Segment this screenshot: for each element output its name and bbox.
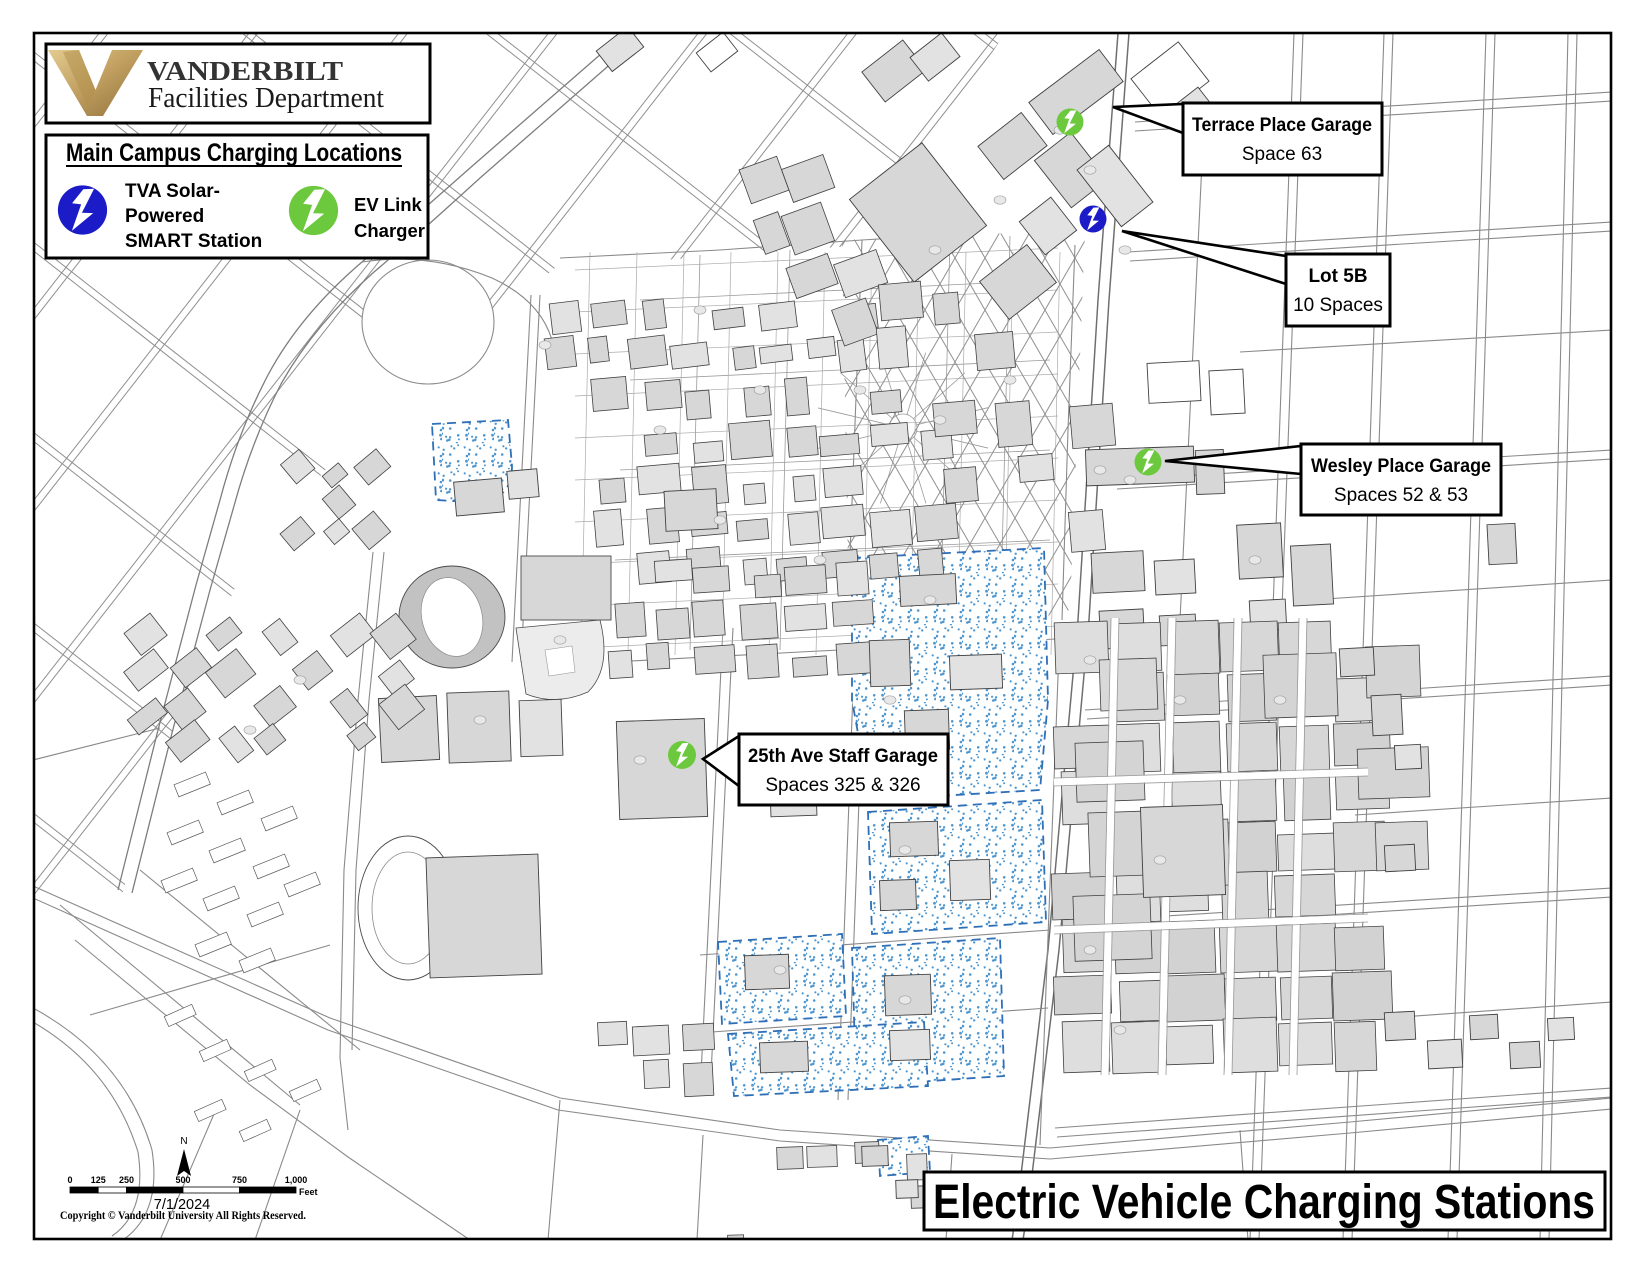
svg-text:N: N <box>180 1136 187 1147</box>
svg-text:Spaces 325 & 326: Spaces 325 & 326 <box>765 775 920 796</box>
svg-text:0: 0 <box>67 1175 72 1185</box>
svg-text:Main Campus Charging Locations: Main Campus Charging Locations <box>66 139 402 167</box>
svg-text:Electric Vehicle Charging Stat: Electric Vehicle Charging Stations <box>933 1176 1595 1229</box>
svg-text:TVA Solar-: TVA Solar- <box>125 181 220 202</box>
svg-text:Lot 5B: Lot 5B <box>1308 266 1367 287</box>
svg-text:1,000: 1,000 <box>285 1175 308 1185</box>
svg-text:125: 125 <box>91 1175 106 1185</box>
svg-text:SMART Station: SMART Station <box>125 231 262 252</box>
svg-text:750: 750 <box>232 1175 247 1185</box>
svg-text:Powered: Powered <box>125 206 204 227</box>
svg-text:Space 63: Space 63 <box>1242 144 1322 165</box>
svg-text:Terrace Place Garage: Terrace Place Garage <box>1192 115 1372 136</box>
svg-text:Spaces 52 & 53: Spaces 52 & 53 <box>1334 485 1468 506</box>
svg-text:EV Link: EV Link <box>354 194 423 215</box>
svg-text:500: 500 <box>175 1175 190 1185</box>
svg-text:Wesley Place Garage: Wesley Place Garage <box>1311 456 1491 477</box>
svg-text:25th Ave Staff Garage: 25th Ave Staff Garage <box>748 746 938 767</box>
svg-text:250: 250 <box>119 1175 134 1185</box>
svg-text:Feet: Feet <box>299 1187 318 1197</box>
svg-text:Facilities Department: Facilities Department <box>148 82 384 114</box>
svg-text:10 Spaces: 10 Spaces <box>1293 295 1383 316</box>
svg-text:Copyright © Vanderbilt Univer: Copyright © Vanderbilt University All Ri… <box>60 1210 306 1222</box>
svg-text:Charger: Charger <box>354 220 425 241</box>
